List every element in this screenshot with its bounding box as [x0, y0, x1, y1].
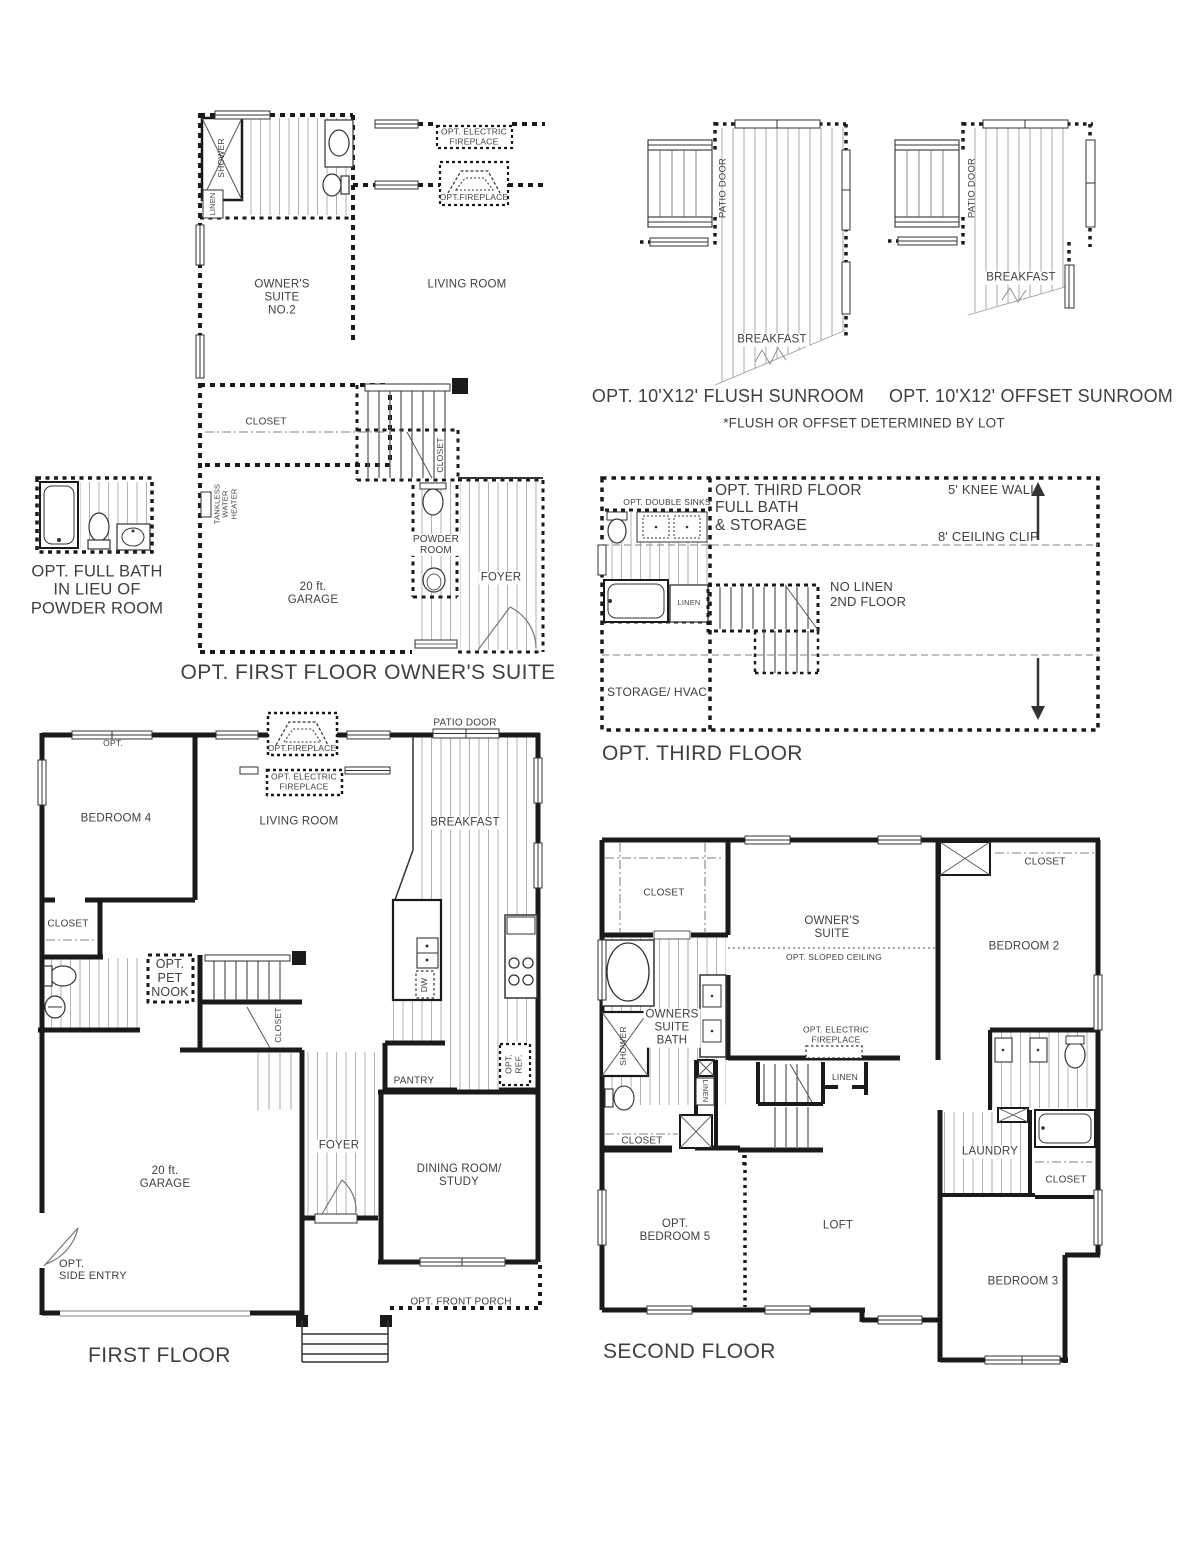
ceiling-clip-label: 8' CEILING CLIP — [938, 530, 1039, 545]
linen-label: LINEN — [209, 192, 217, 215]
closet-label-bedroom2: CLOSET — [1024, 856, 1065, 867]
opt-window-label: OPT. — [103, 739, 123, 749]
floorplan-sheet: SHOWER LINEN OWNER'S SUITE NO.2 LIVING R… — [0, 0, 1200, 1552]
linen-label-third: LINEN — [677, 599, 700, 607]
plan-geometry — [0, 0, 1200, 1552]
room-label-powder-room: POWDER ROOM — [411, 534, 461, 556]
opt-electric-fireplace-label: OPT. ELECTRIC FIREPLACE — [441, 127, 507, 146]
knee-wall-label: 5' KNEE WALL — [948, 483, 1038, 498]
plan-title-opt-full-bath: OPT. FULL BATH IN LIEU OF POWDER ROOM — [31, 562, 163, 617]
room-label-pantry: PANTRY — [392, 1075, 437, 1086]
room-label-foyer-opt: FOYER — [479, 572, 524, 585]
storage-hvac-label: STORAGE/ HVAC — [607, 686, 707, 699]
opt-ref-label: OPT. REF. — [504, 1054, 523, 1074]
room-label-loft: LOFT — [823, 1220, 853, 1233]
shower-label: SHOWER — [217, 138, 227, 177]
plan-title-first-floor: FIRST FLOOR — [88, 1344, 231, 1368]
room-label-dining-study: DINING ROOM/ STUDY — [417, 1163, 502, 1189]
plan-title-offset-sunroom: OPT. 10'X12' OFFSET SUNROOM — [889, 386, 1173, 406]
stair-closet-label-first: CLOSET — [274, 1007, 284, 1042]
patio-door-label-flush: PATIO DOOR — [719, 158, 730, 218]
room-label-bedroom-4: BEDROOM 4 — [81, 813, 152, 826]
opt-fireplace-label-first: OPT.FIREPLACE — [268, 744, 337, 754]
opt-electric-fireplace-label-second: OPT. ELECTRIC FIREPLACE — [803, 1025, 869, 1044]
closet-label-bedroom3: CLOSET — [1045, 1174, 1086, 1185]
room-label-garage-opt: 20 ft. GARAGE — [288, 581, 338, 607]
breakfast-label-flush: BREAKFAST — [735, 334, 809, 347]
plan-title-third-floor: OPT. THIRD FLOOR — [602, 742, 803, 766]
room-label-garage: 20 ft. GARAGE — [140, 1165, 190, 1191]
plan-title-opt-owners-suite: OPT. FIRST FLOOR OWNER'S SUITE — [181, 661, 556, 685]
tankless-water-heater-label: TANKLESS WATER HEATER — [213, 484, 238, 524]
breakfast-label-offset: BREAKFAST — [984, 272, 1058, 285]
third-floor-bath-storage-label: OPT. THIRD FLOOR FULL BATH & STORAGE — [715, 482, 862, 534]
room-label-living-room-opt: LIVING ROOM — [428, 279, 507, 292]
stair-closet-label: CLOSET — [436, 437, 446, 472]
room-label-breakfast: BREAKFAST — [428, 817, 502, 830]
no-linen-label: NO LINEN 2ND FLOOR — [830, 580, 906, 609]
opt-fireplace-label: OPT.FIREPLACE — [440, 193, 509, 203]
patio-door-label-first: PATIO DOOR — [433, 717, 496, 728]
opt-pet-nook-label: OPT. PET NOOK — [151, 957, 189, 999]
plan-title-second-floor: SECOND FLOOR — [603, 1340, 776, 1364]
patio-door-label-offset: PATIO DOOR — [968, 158, 979, 218]
room-label-owners-suite-2: OWNER'S SUITE NO.2 — [254, 279, 309, 318]
opt-front-porch-label: OPT. FRONT PORCH — [410, 1296, 511, 1307]
room-label-foyer: FOYER — [317, 1140, 362, 1153]
shower-label-second: SHOWER — [619, 1026, 629, 1065]
closet-label-bedroom5: CLOSET — [621, 1135, 662, 1146]
room-label-bedroom-3: BEDROOM 3 — [988, 1276, 1059, 1289]
room-label-bedroom-2: BEDROOM 2 — [989, 941, 1060, 954]
plan-opt-full-bath-geometry — [37, 478, 152, 552]
room-label-owners-suite: OWNER'S SUITE — [804, 915, 859, 941]
room-label-opt-bedroom-5: OPT. BEDROOM 5 — [640, 1218, 711, 1244]
room-label-laundry: LAUNDRY — [960, 1146, 1020, 1159]
opt-electric-fireplace-label-first: OPT. ELECTRIC FIREPLACE — [271, 772, 337, 791]
sunroom-offset-geometry — [888, 120, 1095, 315]
plan-title-flush-sunroom: OPT. 10'X12' FLUSH SUNROOM — [592, 386, 864, 406]
linen-label-second: LINEN — [832, 1073, 858, 1083]
opt-double-sinks-label: OPT. DOUBLE SINKS — [623, 498, 710, 508]
linen-small-label-second: LINEN — [701, 1079, 709, 1102]
opt-sloped-ceiling-label: OPT. SLOPED CEILING — [786, 953, 882, 963]
closet-label-bedroom4: CLOSET — [47, 918, 88, 929]
room-label-owners-suite-bath: OWNERS SUITE BATH — [644, 1009, 701, 1048]
opt-side-entry-label: OPT. SIDE ENTRY — [59, 1258, 127, 1283]
closet-label-owners: CLOSET — [643, 887, 684, 898]
dw-label: DW — [420, 978, 430, 993]
closet-label: CLOSET — [245, 416, 286, 427]
room-label-living-room: LIVING ROOM — [260, 816, 339, 829]
sunroom-note: *FLUSH OR OFFSET DETERMINED BY LOT — [723, 415, 1005, 430]
